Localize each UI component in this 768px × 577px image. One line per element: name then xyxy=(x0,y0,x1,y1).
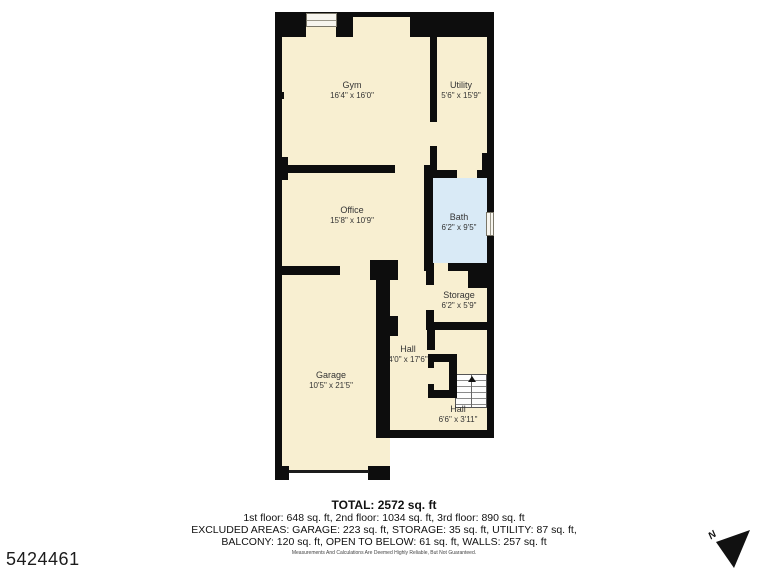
room-name: Utility xyxy=(434,80,488,91)
room-label-utility: Utility 5'6" x 15'9" xyxy=(434,80,488,100)
garage-door-line xyxy=(289,470,369,473)
floor-plan-page: Gym 16'4" x 16'0" Utility 5'6" x 15'9" O… xyxy=(0,0,768,576)
room-label-office: Office 15'8" x 10'9" xyxy=(292,205,412,225)
wall-segment xyxy=(426,263,434,285)
disclaimer-text: Measurements And Calculations Are Deemed… xyxy=(0,549,768,557)
wall-segment xyxy=(376,430,494,438)
floors-area-text: 1st floor: 648 sq. ft, 2nd floor: 1034 s… xyxy=(0,512,768,524)
room-name: Garage xyxy=(272,370,390,381)
north-arrow-label: N xyxy=(706,528,719,542)
north-arrow-icon: N xyxy=(702,524,756,577)
wall-segment xyxy=(430,26,437,122)
wall-segment xyxy=(368,466,390,480)
wall-segment xyxy=(282,17,306,37)
wall-segment xyxy=(426,322,487,330)
wall-segment xyxy=(275,466,289,480)
total-area-text: TOTAL: 2572 sq. ft xyxy=(0,499,768,512)
room-label-bath: Bath 6'2" x 9'5" xyxy=(430,212,488,232)
room-name: Bath xyxy=(430,212,488,223)
window-glyph-top xyxy=(306,13,337,27)
wall-segment xyxy=(427,330,435,350)
room-dimensions: 6'2" x 5'9" xyxy=(431,301,487,310)
wall-segment xyxy=(280,92,284,99)
room-name: Office xyxy=(292,205,412,216)
excluded-areas-text-2: BALCONY: 120 sq. ft, OPEN TO BELOW: 61 s… xyxy=(0,536,768,548)
wall-segment xyxy=(370,260,398,280)
wall-segment xyxy=(376,280,390,438)
wall-segment xyxy=(388,316,398,336)
wall-segment xyxy=(282,165,395,173)
wall-segment xyxy=(282,266,340,275)
wall-segment xyxy=(275,12,282,480)
room-dimensions: 16'4" x 16'0" xyxy=(292,91,412,100)
excluded-areas-text-1: EXCLUDED AREAS: GARAGE: 223 sq. ft, STOR… xyxy=(0,524,768,536)
staircase xyxy=(455,374,487,408)
room-name: Gym xyxy=(292,80,412,91)
room-label-gym: Gym 16'4" x 16'0" xyxy=(292,80,412,100)
wall-segment xyxy=(477,170,487,178)
wall-segment xyxy=(280,157,288,180)
room-label-garage: Garage 10'5" x 21'5" xyxy=(272,370,390,390)
room-dimensions: 6'2" x 9'5" xyxy=(430,223,488,232)
room-label-hall-lower: Hall 6'6" x 3'11" xyxy=(426,404,490,424)
room-dimensions: 10'5" x 21'5" xyxy=(272,381,390,390)
wall-segment xyxy=(428,354,434,368)
wall-segment xyxy=(468,271,487,288)
area-summary: TOTAL: 2572 sq. ft 1st floor: 648 sq. ft… xyxy=(0,499,768,557)
room-name: Storage xyxy=(431,290,487,301)
room-dimensions: 15'8" x 10'9" xyxy=(292,216,412,225)
window-glyph-right xyxy=(486,212,494,236)
listing-id: 5424461 xyxy=(6,549,80,570)
wall-segment xyxy=(448,263,487,271)
wall-segment xyxy=(410,12,487,37)
room-name: Hall xyxy=(426,404,490,415)
wall-segment xyxy=(430,170,457,178)
room-dimensions: 5'6" x 15'9" xyxy=(434,91,488,100)
room-dimensions: 6'6" x 3'11" xyxy=(426,415,490,424)
wall-segment xyxy=(424,170,433,263)
stairs-up-arrow-icon xyxy=(468,376,476,382)
wall-segment xyxy=(336,17,353,37)
room-label-storage: Storage 6'2" x 5'9" xyxy=(431,290,487,310)
wall-segment xyxy=(428,384,434,398)
